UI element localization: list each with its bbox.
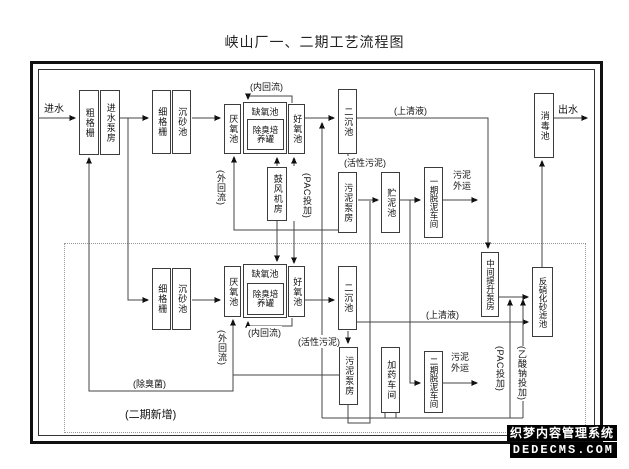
flow-lines	[0, 0, 629, 469]
phase2-grit-chamber-box: 沉砂池	[172, 268, 191, 330]
phase1-anaerobic-tank-box: 厌氧池	[224, 104, 241, 154]
watermark-line2: DEDECMS.COM	[510, 442, 617, 458]
phase1-external-recycle-label: (外回流)	[215, 170, 228, 206]
phase1-outflow-label: 出水	[557, 101, 579, 116]
phase2-deodor-bacteria-label: (除臭菌)	[132, 377, 167, 390]
phase1-inlet-pump-house-box: 进水泵房	[100, 90, 120, 155]
watermark: 织梦内容管理系统 DEDECMS.COM	[507, 425, 617, 458]
phase1-disinfection-tank-box: 消毒池	[534, 93, 554, 158]
phase2-secondary-clarifier-box: 二沉池	[338, 266, 357, 330]
phase2-deodor-culture-tank-box: 除臭培养罐	[247, 283, 284, 315]
phase2-supernatant-label: (上清液)	[425, 308, 460, 321]
phase2-external-recycle-label: (外回流)	[216, 330, 229, 366]
phase1-deodor-culture-tank-box: 除臭培养罐	[247, 119, 284, 150]
phase1-anoxic-tank-label: 缺氧池	[244, 105, 286, 118]
phase1-secondary-clarifier-box: 二沉池	[338, 89, 357, 154]
phase1-fine-screen-box: 细格栅	[152, 90, 171, 154]
phase1-supernatant-label: (上清液)	[393, 104, 428, 117]
phase1-grit-chamber-box: 沉砂池	[172, 90, 191, 154]
phase2-new-label: (二期新增)	[124, 406, 177, 422]
phase2-sludge-pump-house-box: 污泥泵房	[339, 347, 358, 405]
phase2-anaerobic-tank-box: 厌氧池	[224, 266, 241, 317]
phase2-aerobic-tank-box: 好氧池	[288, 266, 305, 317]
phase2-dewatering-workshop-box: 二期脱泥车间	[424, 351, 443, 413]
phase2-pac-dosing-label: (PAC投加)	[494, 346, 507, 391]
phase1-sludge-storage-tank-box: 贮泥池	[381, 172, 400, 233]
phase1-internal-recycle-label: (内回流)	[249, 80, 284, 93]
phase2-activated-sludge-label: (活性污泥)	[297, 335, 341, 348]
phase2-dosing-workshop-box: 加药车间	[381, 347, 400, 413]
phase1-coarse-screen-box: 粗格栅	[79, 90, 99, 155]
phase2-denitrification-sand-filter-box: 反硝化砂滤池	[532, 267, 553, 337]
phase2-fine-screen-box: 细格栅	[152, 268, 171, 330]
phase1-pac-dosing-label: (PAC投加)	[301, 173, 314, 218]
phase2-intermediate-lift-pump-house-box: 中间提升泵房	[481, 252, 499, 317]
phase1-sludge-pump-house-box: 污泥泵房	[338, 172, 357, 233]
phase1-dewatering-workshop-box: 一期脱泥车间	[424, 167, 443, 238]
phase1-activated-sludge-label: (活性污泥)	[343, 156, 387, 169]
phase1-inflow-label: 进水	[43, 100, 65, 115]
phase1-sludge-out-label: 污泥外运	[449, 170, 475, 192]
flow-diagram: 峡山厂一、二期工艺流程图	[0, 0, 629, 469]
phase2-internal-recycle-label: (内回流)	[247, 326, 282, 339]
phase1-blower-house-box: 鼓风机房	[267, 167, 287, 221]
phase2-sludge-out-label: 污泥外运	[447, 352, 473, 374]
phase2-sodium-acetate-dosing-label: (乙酸钠投加)	[516, 346, 529, 401]
phase1-aerobic-tank-box: 好氧池	[288, 104, 305, 154]
phase2-anoxic-tank-label: 缺氧池	[244, 267, 286, 280]
watermark-line1: 织梦内容管理系统	[507, 425, 617, 441]
